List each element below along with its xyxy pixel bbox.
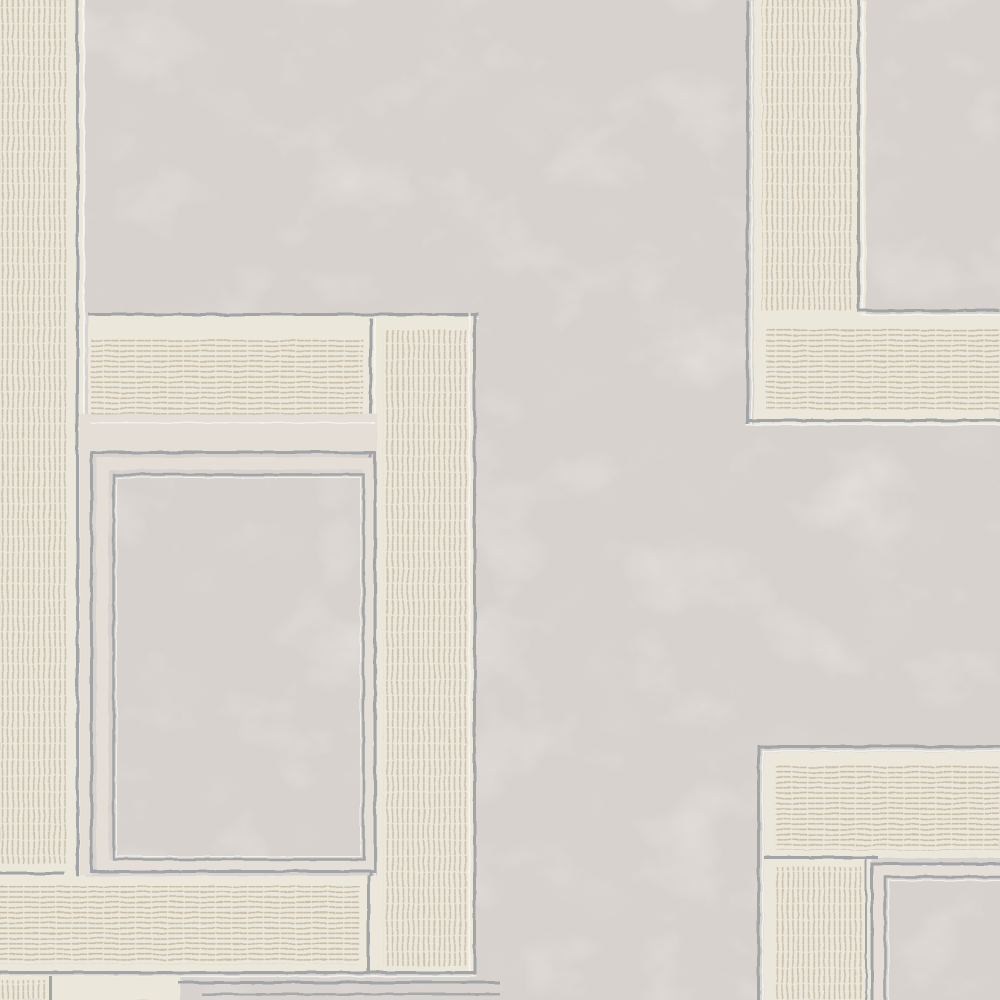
wallpaper-photo [0, 0, 1000, 1000]
grain-speckle-dark [0, 0, 1000, 1000]
wallpaper-svg [0, 0, 1000, 1000]
